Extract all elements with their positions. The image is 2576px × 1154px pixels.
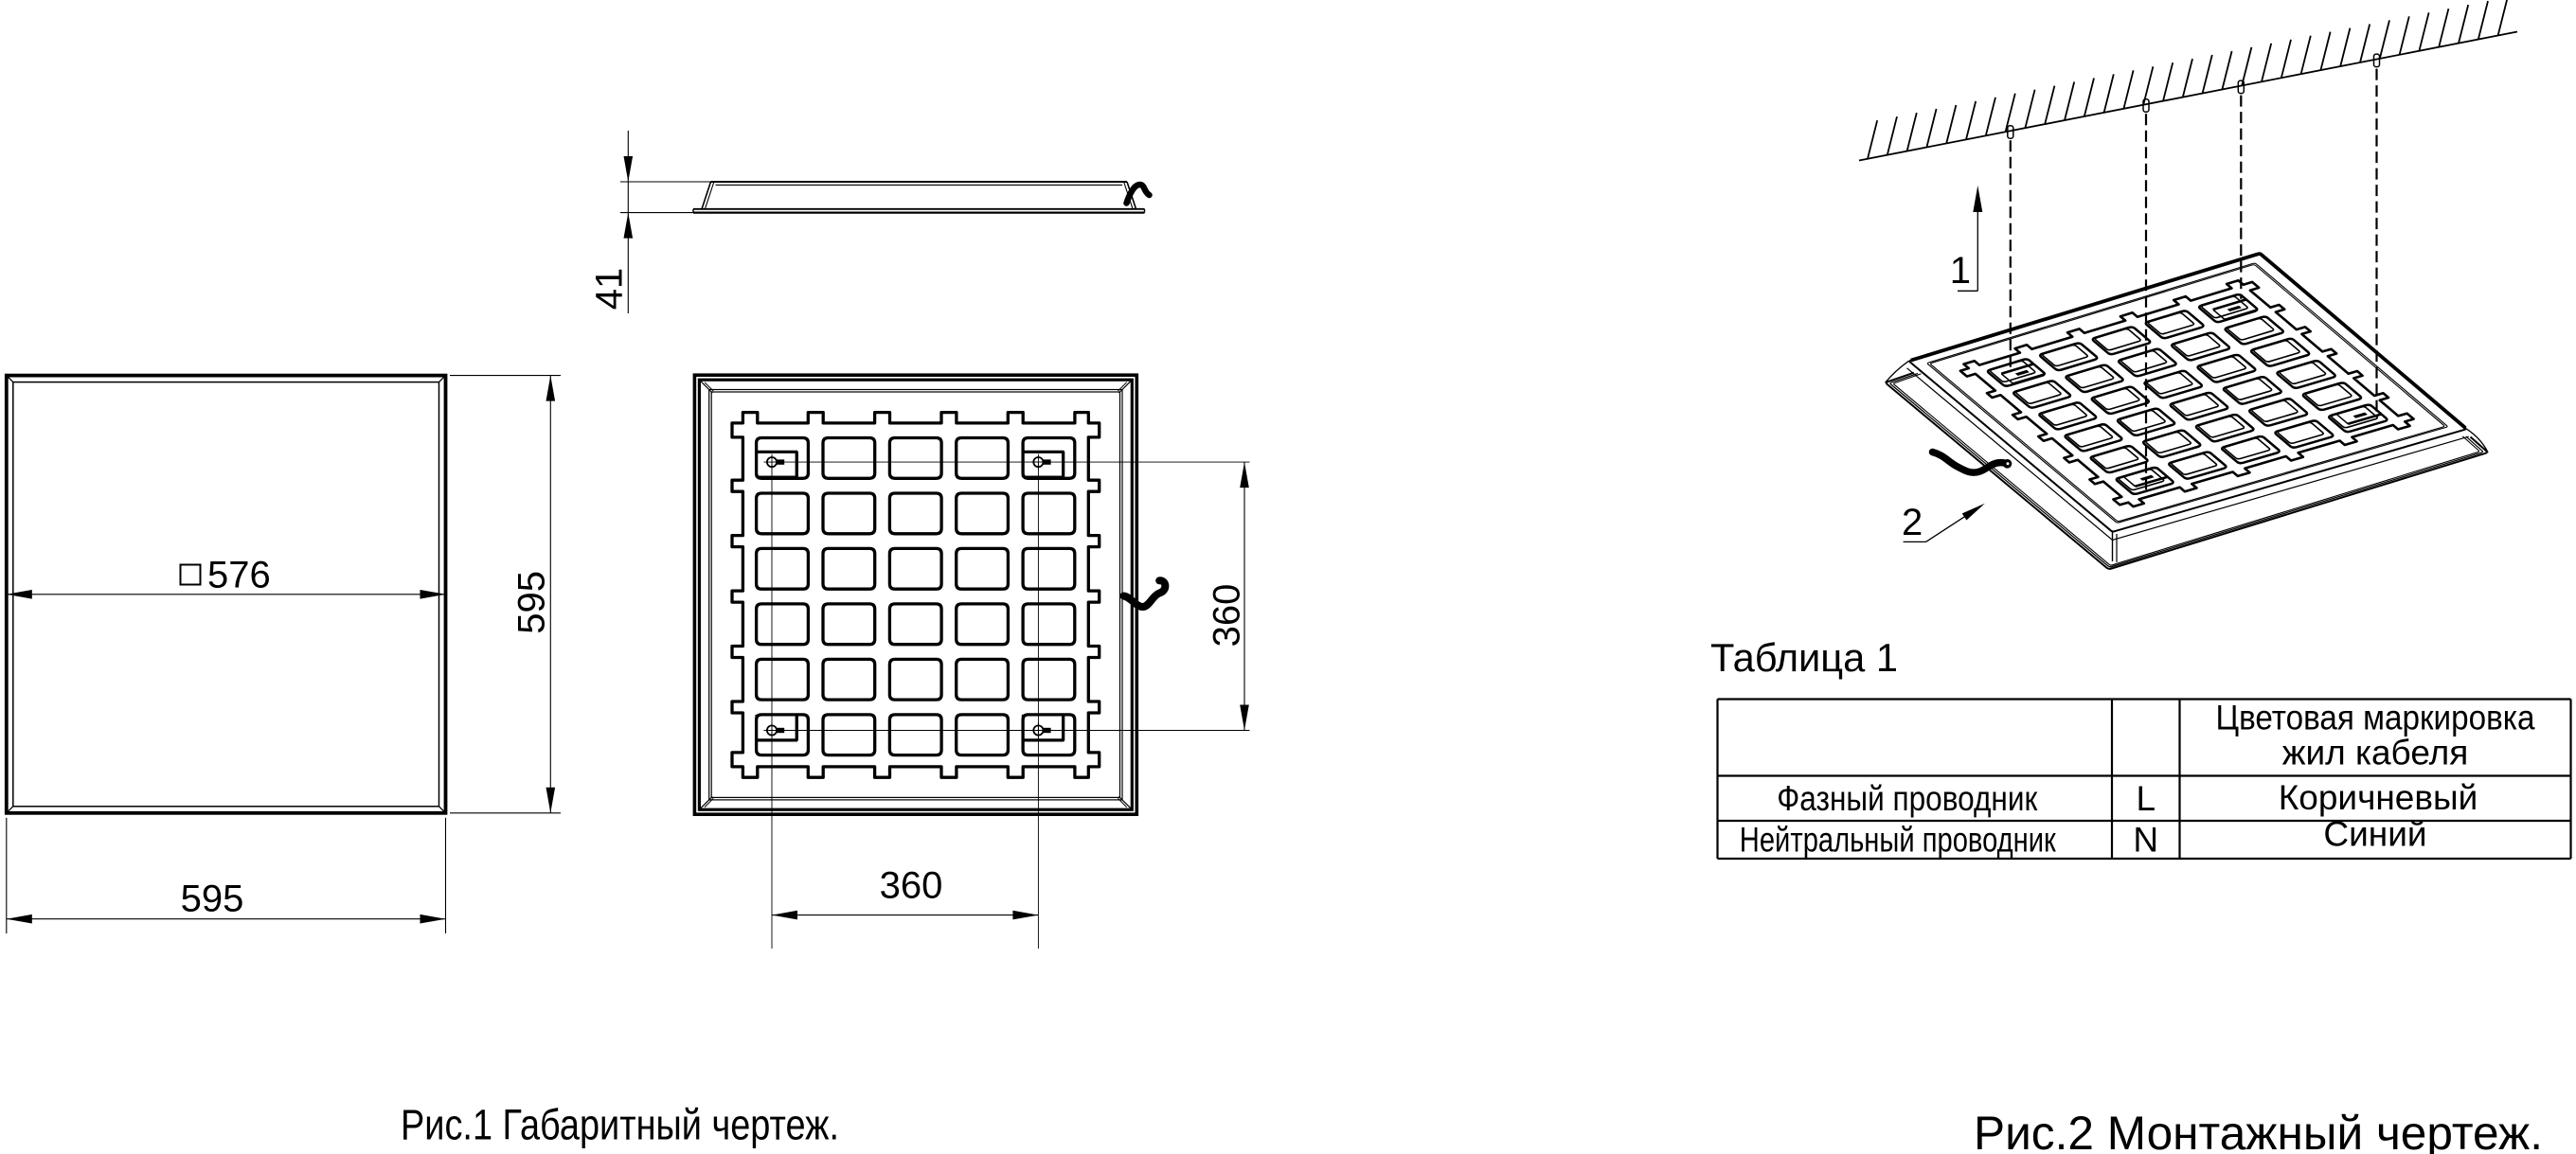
svg-text:Цветовая маркировка: Цветовая маркировка [2216,699,2535,737]
svg-text:41: 41 [589,268,631,311]
svg-text:Таблица 1: Таблица 1 [1710,635,1898,680]
svg-text:1: 1 [1950,250,1971,292]
svg-text:Рис.2 Монтажный чертеж.: Рис.2 Монтажный чертеж. [1974,1107,2543,1154]
svg-text:576: 576 [207,554,271,595]
svg-text:L: L [2137,779,2156,818]
svg-text:595: 595 [181,879,244,920]
svg-text:жил кабеля: жил кабеля [2282,734,2469,772]
svg-text:Коричневый: Коричневый [2279,778,2478,817]
svg-text:N: N [2133,821,2158,860]
svg-text:360: 360 [880,865,943,907]
svg-text:595: 595 [511,571,553,634]
svg-text:Фазный проводник: Фазный проводник [1777,779,2038,818]
svg-text:Синий: Синий [2323,815,2426,854]
svg-text:360: 360 [1207,584,1248,648]
svg-text:2: 2 [1902,502,1923,543]
svg-text:Рис.1 Габаритный чертеж.: Рис.1 Габаритный чертеж. [401,1101,839,1149]
svg-text:Нейтральный проводник: Нейтральный проводник [1740,821,2057,860]
